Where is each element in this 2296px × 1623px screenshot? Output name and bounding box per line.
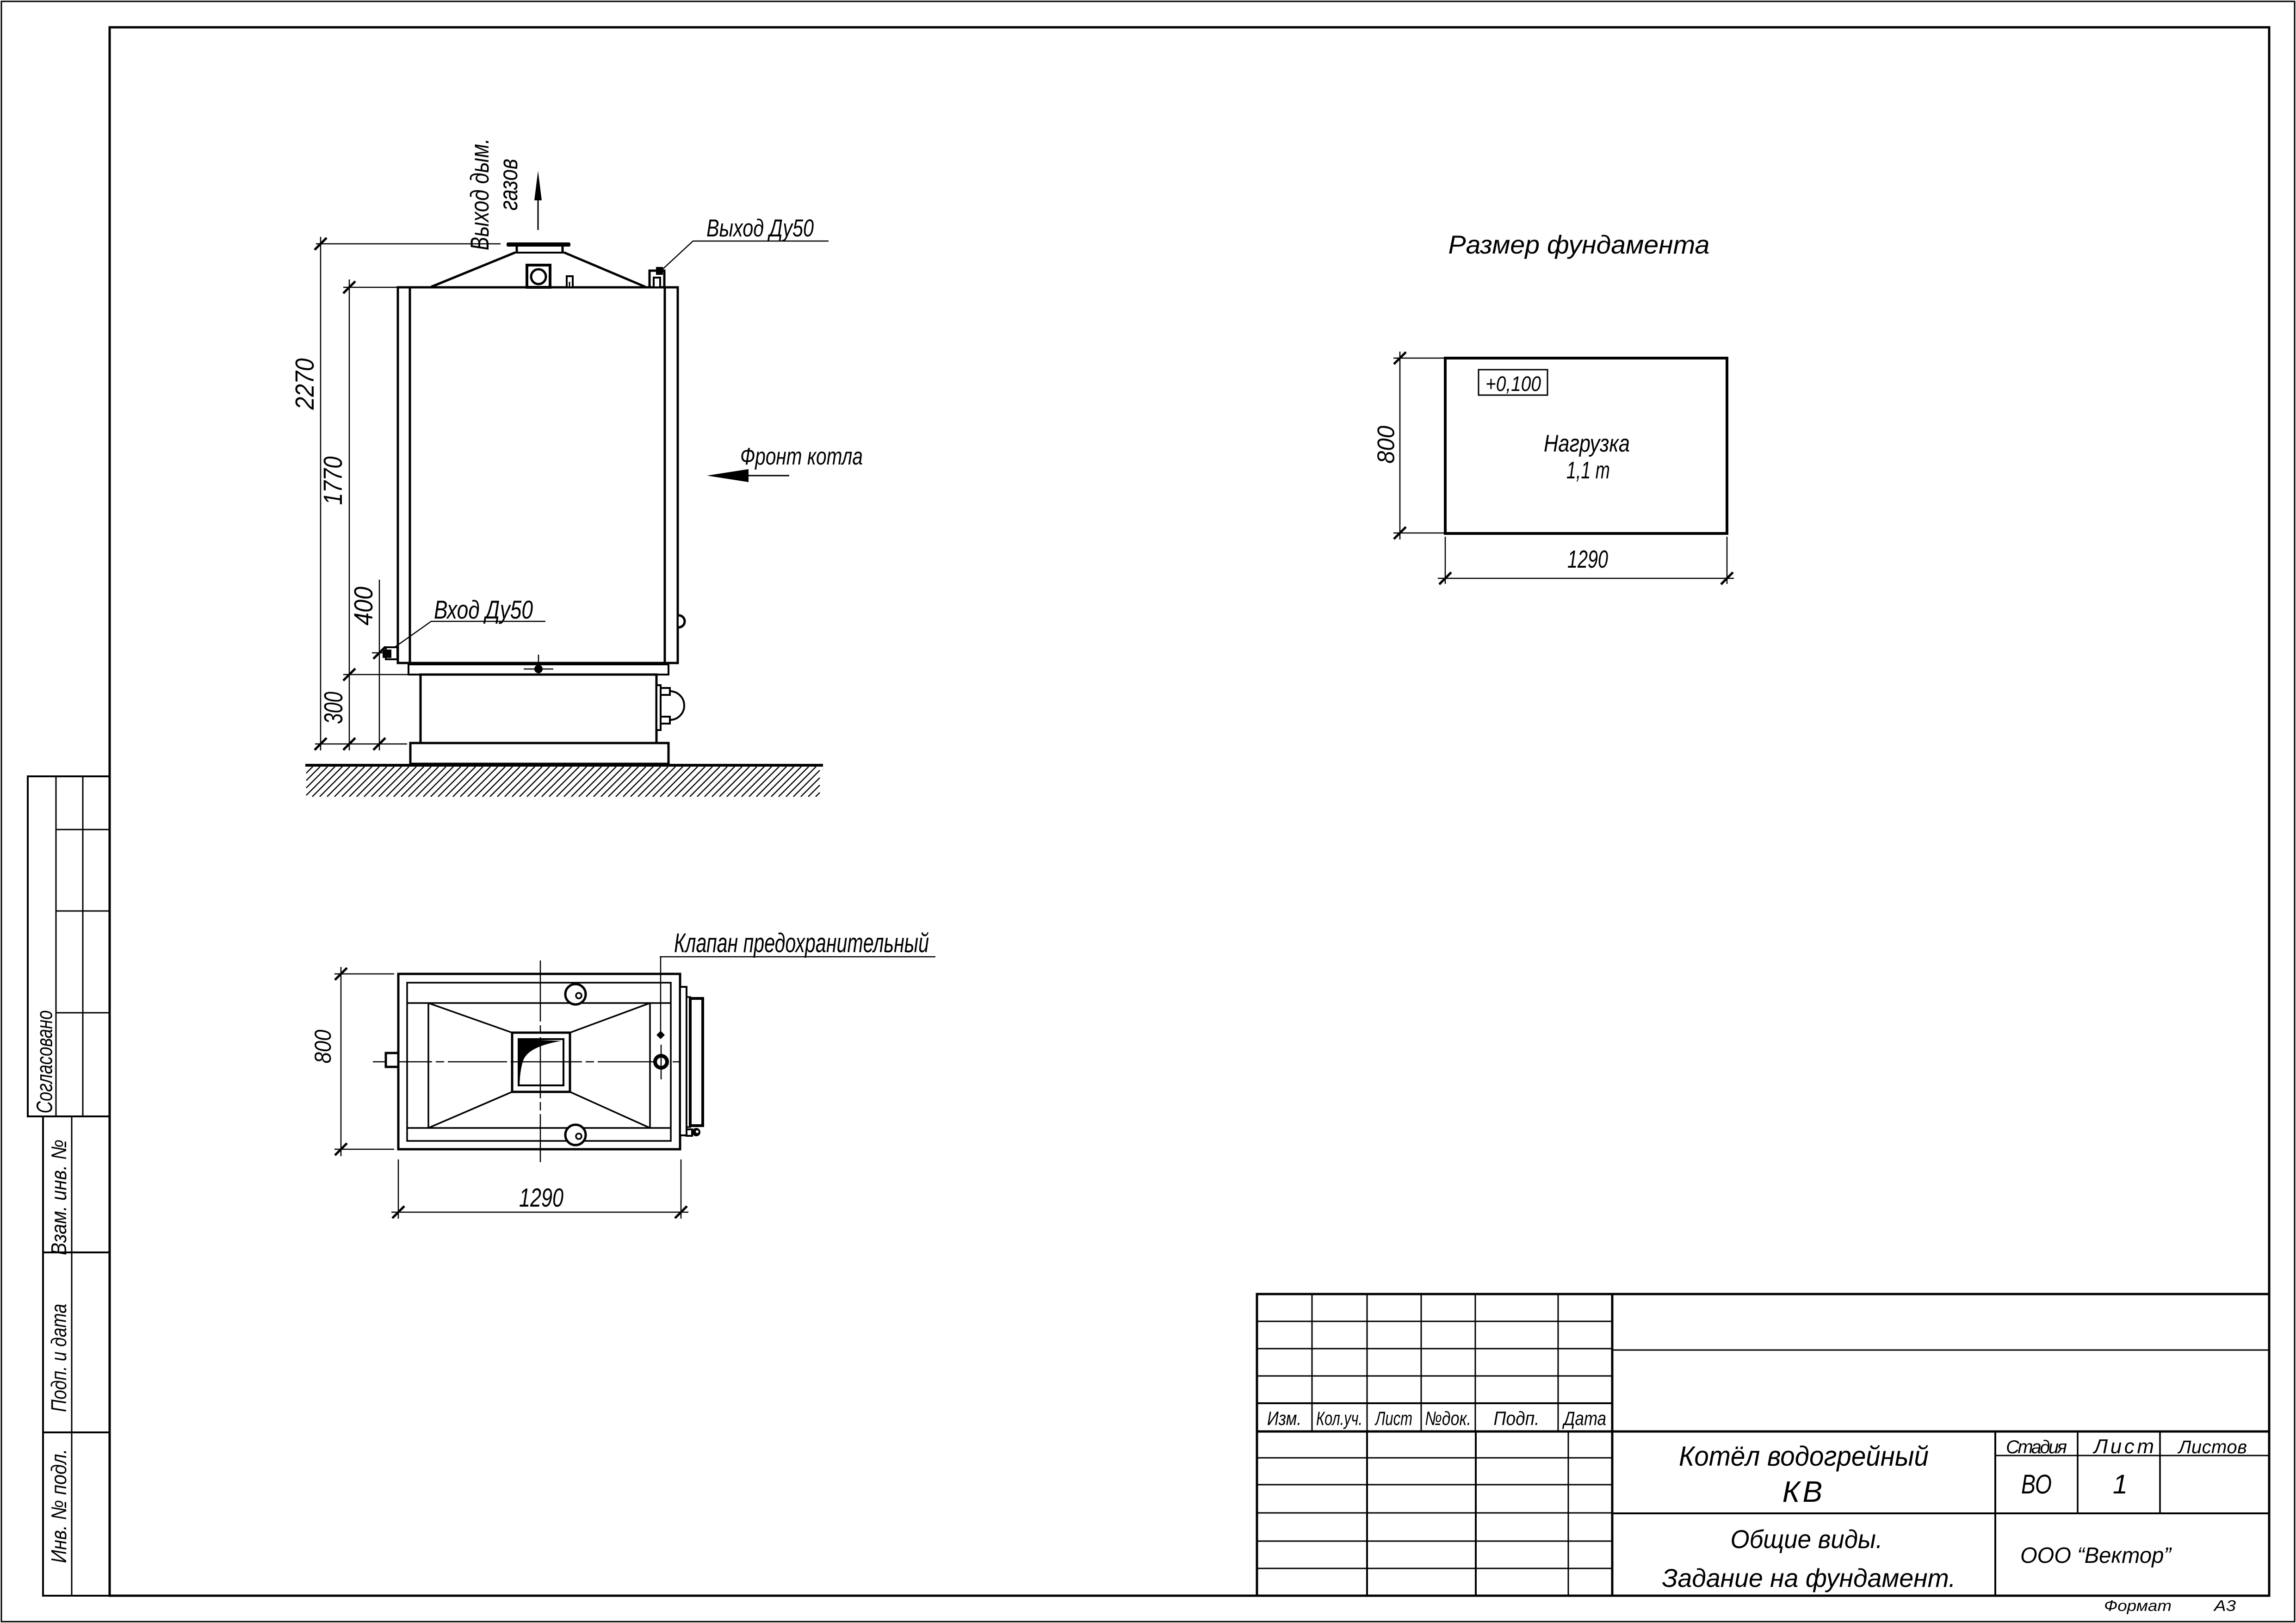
svg-text:800: 800 xyxy=(310,1029,336,1063)
svg-text:Кол.уч.: Кол.уч. xyxy=(1316,1407,1362,1429)
svg-text:1,1 т: 1,1 т xyxy=(1566,457,1610,484)
svg-text:400: 400 xyxy=(349,587,378,626)
svg-text:300: 300 xyxy=(319,692,348,724)
svg-text:Взам. инв. №: Взам. инв. № xyxy=(47,1140,71,1255)
svg-text:№док.: №док. xyxy=(1425,1407,1471,1429)
svg-text:Выход дым.: Выход дым. xyxy=(465,138,494,250)
svg-text:Фронт котла: Фронт котла xyxy=(740,443,863,470)
svg-text:Размер фундамента: Размер фундамента xyxy=(1448,230,1710,259)
svg-text:Задание на фундамент.: Задание на фундамент. xyxy=(1662,1563,1956,1592)
svg-text:А3: А3 xyxy=(2213,1597,2236,1614)
svg-text:Листов: Листов xyxy=(2177,1437,2247,1457)
svg-text:Формат: Формат xyxy=(2104,1597,2172,1614)
svg-text:Нагрузка: Нагрузка xyxy=(1544,430,1630,457)
svg-text:Согласовано: Согласовано xyxy=(33,1010,57,1114)
svg-text:Вход Ду50: Вход Ду50 xyxy=(434,595,533,624)
svg-text:КВ: КВ xyxy=(1782,1475,1825,1508)
svg-text:2270: 2270 xyxy=(290,358,320,410)
svg-text:+0,100: +0,100 xyxy=(1485,372,1541,396)
svg-text:1290: 1290 xyxy=(519,1183,563,1213)
svg-text:Стадия: Стадия xyxy=(2006,1437,2067,1457)
svg-text:газов: газов xyxy=(494,159,523,211)
svg-text:ООО “Вектор”: ООО “Вектор” xyxy=(2020,1543,2172,1568)
svg-text:800: 800 xyxy=(1373,426,1400,464)
svg-text:Инв. № подл.: Инв. № подл. xyxy=(47,1449,71,1563)
svg-text:Дата: Дата xyxy=(1562,1407,1606,1429)
svg-text:1: 1 xyxy=(2113,1469,2128,1499)
svg-text:Изм.: Изм. xyxy=(1267,1407,1301,1429)
svg-text:ВО: ВО xyxy=(2021,1469,2052,1499)
svg-text:Общие виды.: Общие виды. xyxy=(1731,1524,1883,1554)
svg-text:Подп.: Подп. xyxy=(1494,1407,1540,1429)
svg-text:Выход Ду50: Выход Ду50 xyxy=(706,215,814,242)
svg-text:1770: 1770 xyxy=(318,456,348,505)
svg-text:1290: 1290 xyxy=(1567,545,1608,573)
svg-text:Котёл водогрейный: Котёл водогрейный xyxy=(1679,1441,1929,1472)
svg-text:Лист: Лист xyxy=(1374,1407,1412,1429)
svg-text:Подп. и дата: Подп. и дата xyxy=(47,1304,71,1412)
svg-text:Клапан предохранительный: Клапан предохранительный xyxy=(674,928,929,958)
